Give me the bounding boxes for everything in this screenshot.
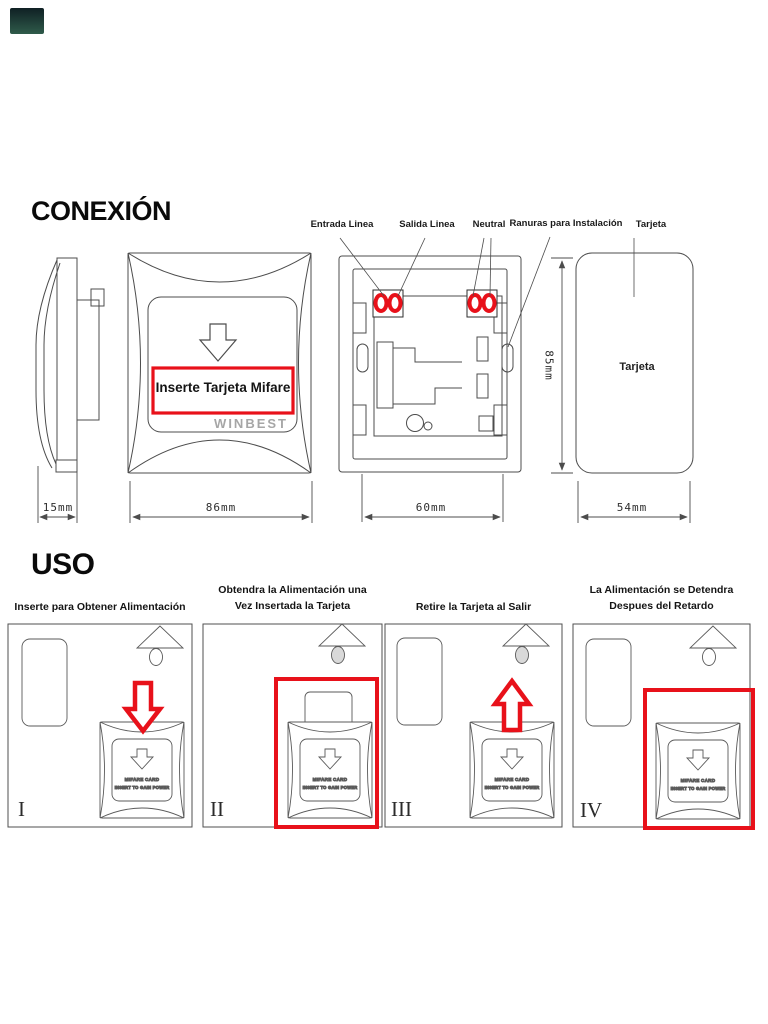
mounting-slot-left <box>357 344 368 372</box>
lamp-on-icon-2 <box>319 624 365 664</box>
mini-switch-1 <box>100 722 184 818</box>
lamp-off-icon-1 <box>137 626 183 666</box>
door-outline-3 <box>397 638 442 725</box>
card-drawing <box>576 253 693 473</box>
insert-text-red-box <box>153 368 293 413</box>
line-art: MIFARE CARD INSERT TO GAIN POWER <box>0 0 768 1024</box>
side-view-drawing <box>36 258 104 472</box>
instruction-sheet: CONEXIÓN USO Entrada Linea Salida Linea … <box>0 0 768 1024</box>
front-view-drawing <box>128 253 311 473</box>
door-outline-4 <box>586 639 631 726</box>
mini-switch-2 <box>288 722 372 818</box>
mini-switch-4 <box>656 723 740 819</box>
lamp-on-icon-3 <box>503 624 549 664</box>
door-outline-1 <box>22 639 67 726</box>
wiring-drawing <box>339 256 521 472</box>
lamp-off-icon-4 <box>690 626 736 666</box>
mini-switch-3 <box>470 722 554 818</box>
insert-arrow-icon <box>200 324 236 361</box>
